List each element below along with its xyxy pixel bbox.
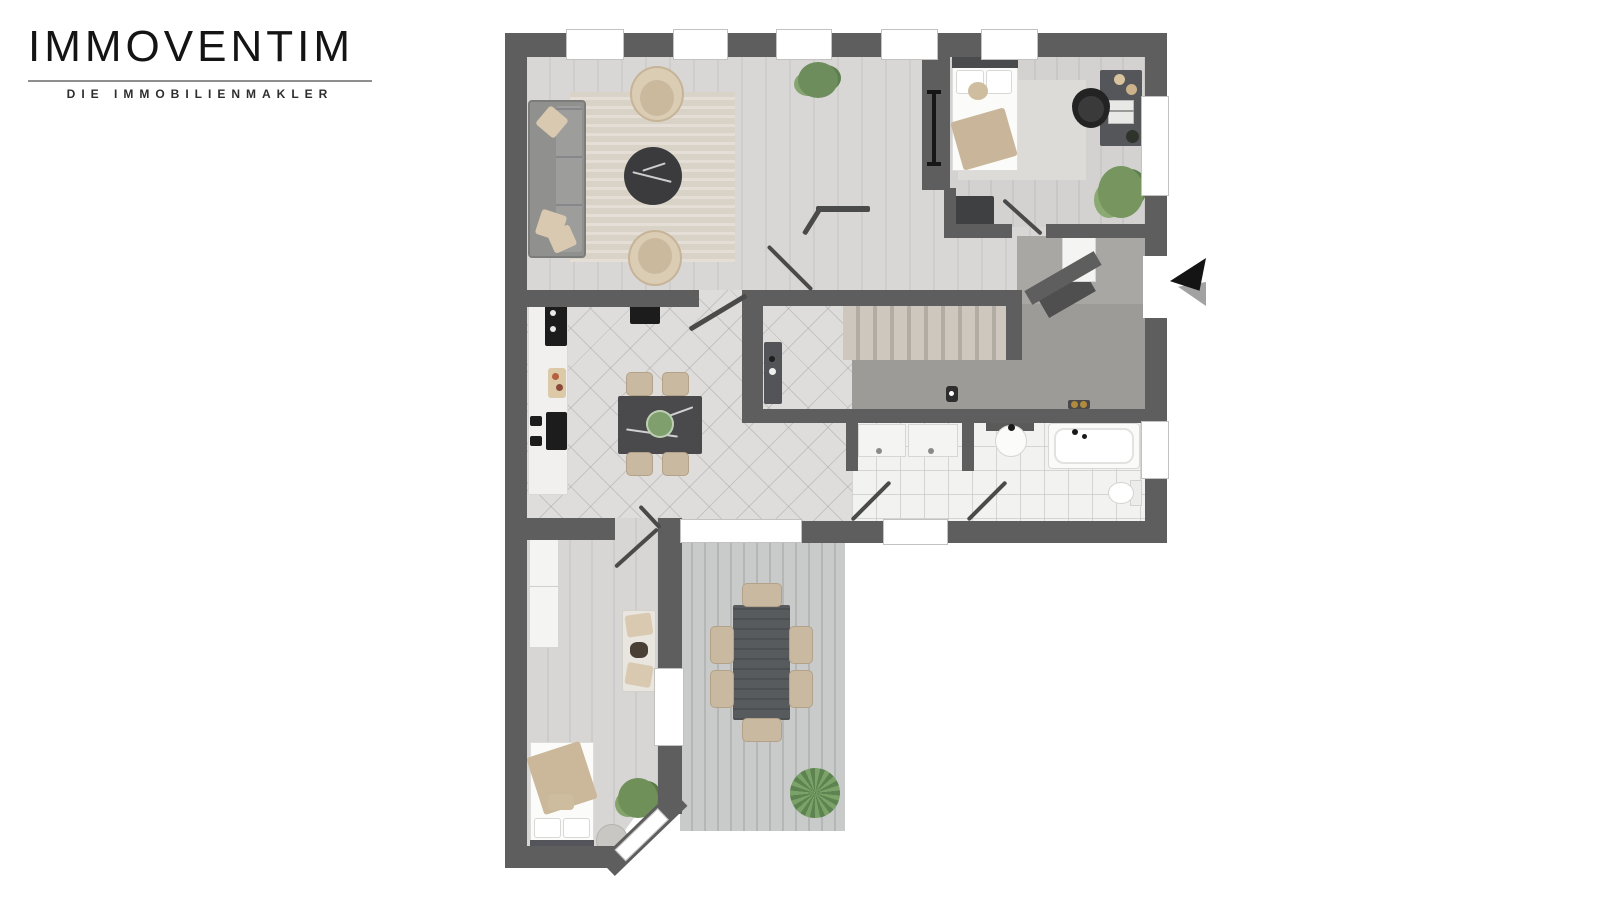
bed-lower-tray xyxy=(548,794,574,810)
window-top-5 xyxy=(981,29,1038,60)
tub-faucet xyxy=(1082,434,1087,439)
laptop-hinge xyxy=(1108,110,1134,112)
closet-block xyxy=(922,57,950,190)
wall-laundry-west xyxy=(846,421,858,471)
closet-rail-cap xyxy=(927,162,941,166)
dryer-knob xyxy=(928,448,934,454)
kitchen-sink xyxy=(546,412,567,450)
office-chair-seat xyxy=(1078,96,1104,122)
entrance-door-opening xyxy=(1143,256,1169,318)
desk-decor xyxy=(1126,84,1137,95)
decor-object-dot xyxy=(949,391,954,396)
washing-machine-knob xyxy=(876,448,882,454)
terrace-door xyxy=(680,519,802,543)
bed-lower-pillow xyxy=(534,818,561,838)
armchair-top-seat xyxy=(640,80,674,116)
faucet-handle xyxy=(530,436,542,446)
bed-upper-pillow xyxy=(986,70,1012,94)
wall-hall-left xyxy=(742,290,763,423)
brand-tagline: DIE IMMOBILIENMAKLER xyxy=(28,87,372,101)
cooktop-burner xyxy=(550,310,556,316)
wall-hall-top xyxy=(742,290,1022,306)
brand-divider xyxy=(28,80,372,82)
window-top-2 xyxy=(673,29,728,60)
terrace-chair xyxy=(742,583,782,607)
cooktop xyxy=(545,304,567,346)
terrace-plant xyxy=(790,768,840,818)
tomato xyxy=(556,384,563,391)
window-top-4 xyxy=(881,29,938,60)
dresser xyxy=(950,196,994,226)
armchair-bottom-seat xyxy=(638,238,672,274)
wardrobe-lower xyxy=(529,526,559,648)
dining-chair xyxy=(626,372,653,396)
terrace-chair xyxy=(710,626,734,664)
wall-stairs-right xyxy=(1006,290,1022,360)
wall-bedroom-lower-right-upper xyxy=(658,518,682,674)
wall-dining-bottom xyxy=(505,518,615,540)
wall-left xyxy=(505,33,527,868)
basin-faucet xyxy=(1008,424,1015,431)
page: IMMOVENTIM DIE IMMOBILIENMAKLER xyxy=(0,0,1600,900)
partition-rail xyxy=(816,206,870,212)
gold-decor xyxy=(1071,401,1078,408)
terrace-chair xyxy=(710,670,734,708)
bathtub-inner xyxy=(1054,428,1134,464)
desk-decor xyxy=(1114,74,1125,85)
window-top-3 xyxy=(776,29,832,60)
closet-rail xyxy=(932,92,936,164)
wardrobe-shelf-line xyxy=(529,586,559,587)
washing-machine xyxy=(858,424,906,457)
window-right-bedroom xyxy=(1141,96,1169,196)
dining-chair xyxy=(662,452,689,476)
cooktop-burner xyxy=(550,326,556,332)
dining-chair xyxy=(662,372,689,396)
brand-title: IMMOVENTIM xyxy=(28,22,388,72)
living-plant xyxy=(798,62,838,98)
daybed-cushion xyxy=(624,662,653,688)
wall-bedroom-upper-bottom-b xyxy=(1046,224,1145,238)
staircase xyxy=(843,304,1010,360)
terrace-chair xyxy=(742,718,782,742)
tomato xyxy=(552,373,559,380)
dining-chair xyxy=(626,452,653,476)
wall-bedroom-upper-bottom-a xyxy=(944,224,1012,238)
hall-cabinet-knob xyxy=(769,368,776,375)
table-plant xyxy=(646,410,674,438)
bed-lower-pillow xyxy=(563,818,590,838)
teddy-bear xyxy=(630,642,648,658)
bed-upper-cushion xyxy=(968,82,988,100)
closet-rail-cap xyxy=(927,90,941,94)
wall-bedroom-lower-bottom xyxy=(505,846,617,868)
faucet-handle xyxy=(530,416,542,426)
laptop xyxy=(1108,100,1134,124)
wall-living-kitchen xyxy=(517,290,699,307)
bedroom-upper-plant xyxy=(1098,166,1144,218)
terrace-chair xyxy=(789,670,813,708)
tub-faucet xyxy=(1072,429,1078,435)
terrace-chair xyxy=(789,626,813,664)
window-right-bathroom xyxy=(1141,421,1169,479)
hall-cabinet-knob xyxy=(769,356,775,362)
window-bedroom-lower xyxy=(654,668,684,746)
wall-laundry-east xyxy=(962,421,974,471)
wall-bath-bottom xyxy=(800,521,1167,543)
daybed-cushion xyxy=(625,612,654,637)
terrace-table xyxy=(733,605,790,720)
toilet xyxy=(1108,482,1134,504)
window-bath-bottom xyxy=(883,519,948,545)
gold-decor xyxy=(1080,401,1087,408)
window-top-1 xyxy=(566,29,624,60)
desk-plant xyxy=(1126,130,1139,143)
wall-hall-bottom xyxy=(752,409,1167,423)
